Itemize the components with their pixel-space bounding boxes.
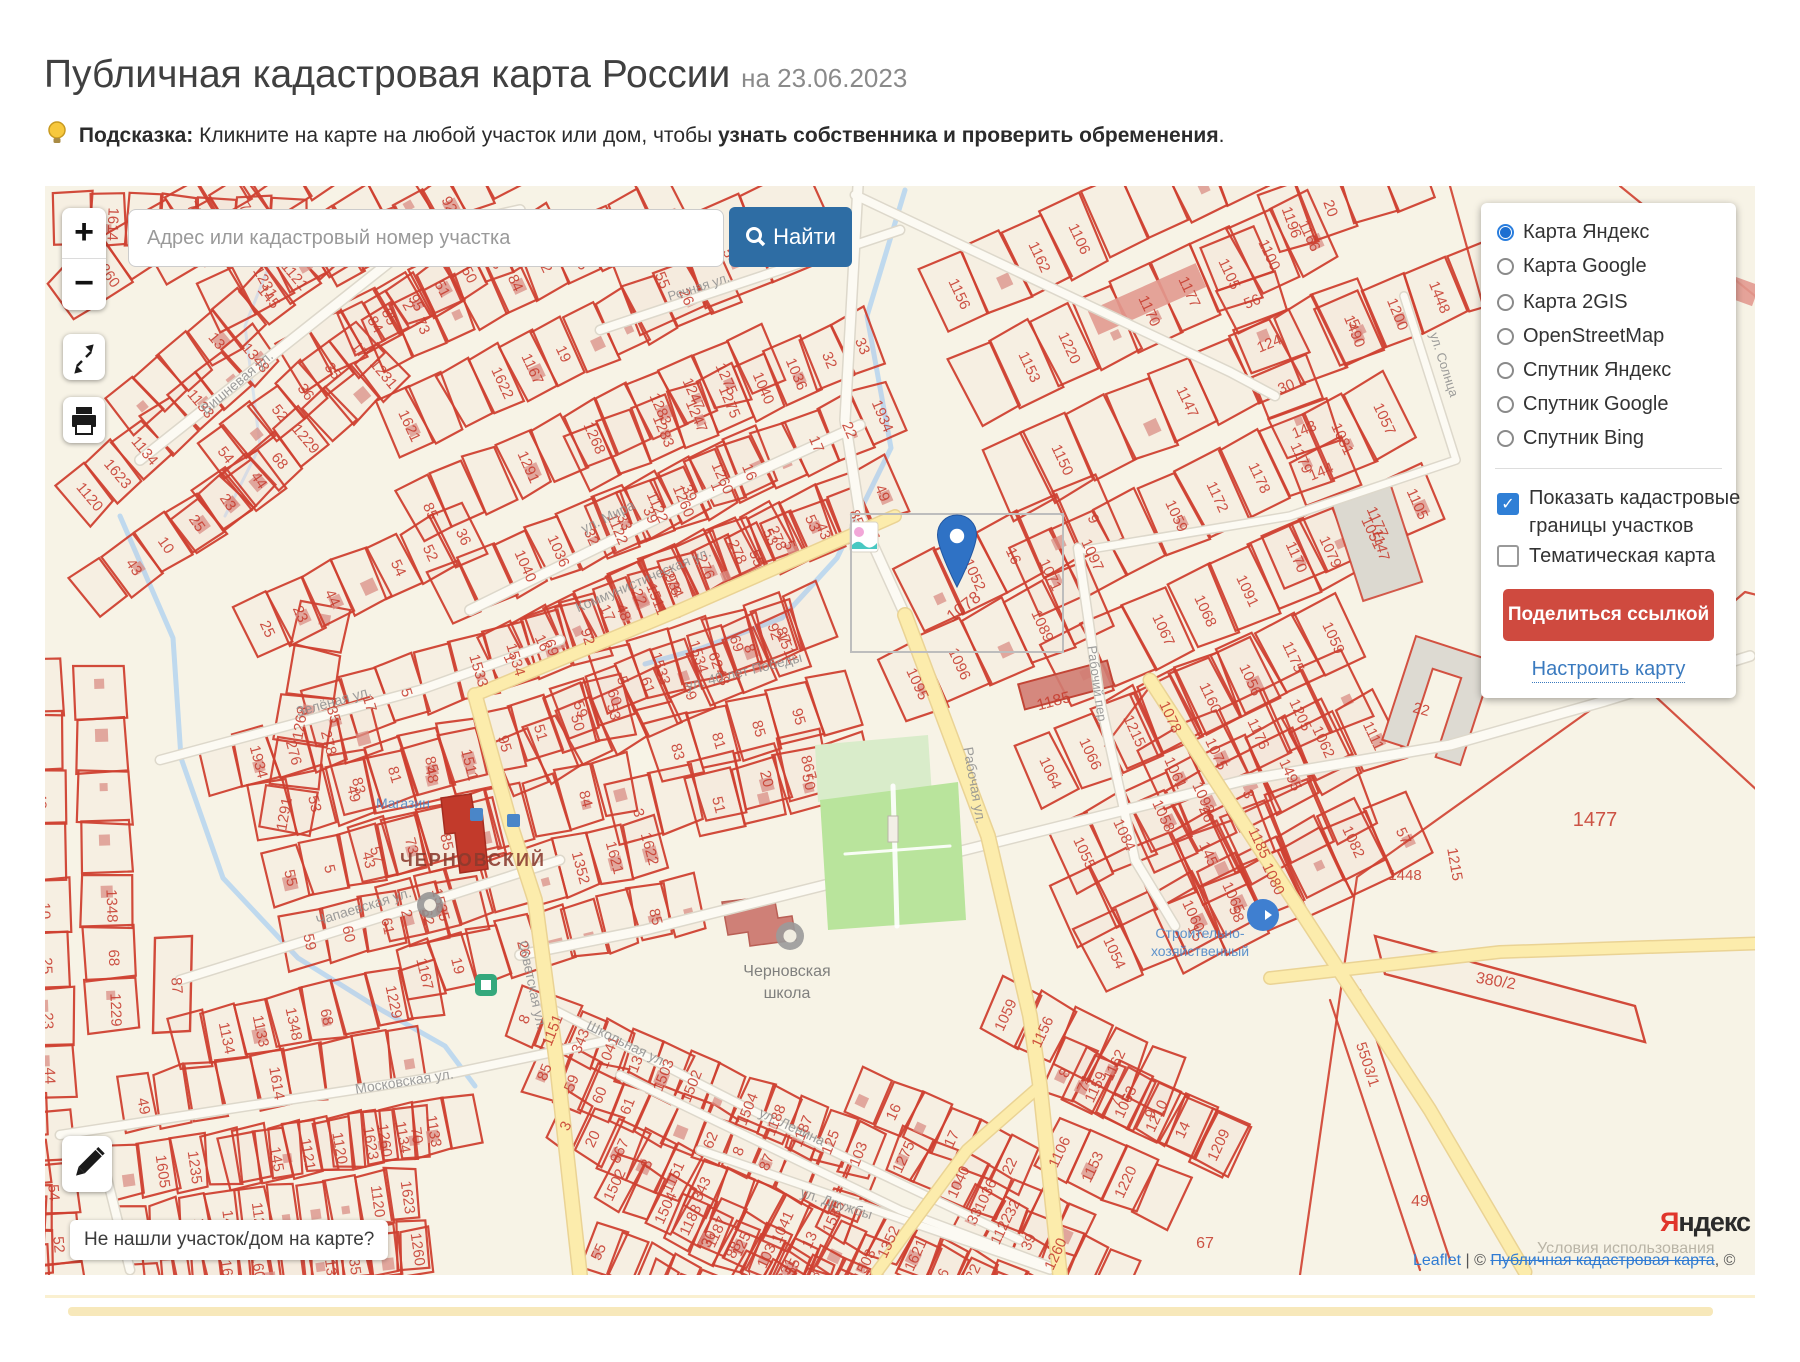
svg-text:68: 68	[105, 949, 123, 966]
svg-text:хозяйственный: хозяйственный	[1151, 943, 1249, 959]
svg-text:школа: школа	[764, 985, 811, 1002]
svg-text:54: 54	[45, 1184, 63, 1202]
svg-text:43: 43	[45, 792, 49, 809]
svg-text:13: 13	[321, 1258, 340, 1275]
svg-text:44: 44	[45, 1067, 58, 1084]
svg-text:10: 10	[45, 902, 53, 919]
svg-text:67: 67	[1196, 1235, 1214, 1252]
svg-text:52: 52	[49, 1236, 67, 1254]
svg-text:59: 59	[299, 932, 319, 952]
svg-text:87: 87	[167, 977, 185, 995]
svg-text:25: 25	[45, 957, 55, 974]
svg-text:49: 49	[1411, 1193, 1429, 1210]
svg-text:Черновская: Черновская	[743, 963, 830, 980]
svg-text:61: 61	[377, 916, 397, 936]
svg-text:Магазин: Магазин	[376, 795, 430, 811]
svg-text:1348: 1348	[102, 889, 120, 923]
svg-text:23: 23	[45, 1012, 56, 1029]
svg-text:1231: 1231	[45, 674, 46, 708]
svg-text:1477: 1477	[1573, 809, 1618, 831]
svg-text:1448: 1448	[1388, 867, 1421, 884]
svg-text:1229: 1229	[106, 993, 124, 1027]
svg-text:ЧЕРНОВСКИЙ: ЧЕРНОВСКИЙ	[400, 849, 546, 870]
svg-text:1614: 1614	[103, 207, 121, 241]
svg-text:68: 68	[316, 1007, 336, 1027]
svg-text:49: 49	[134, 1097, 154, 1116]
svg-text:60: 60	[338, 924, 358, 944]
svg-text:Строительно-: Строительно-	[1155, 925, 1244, 941]
